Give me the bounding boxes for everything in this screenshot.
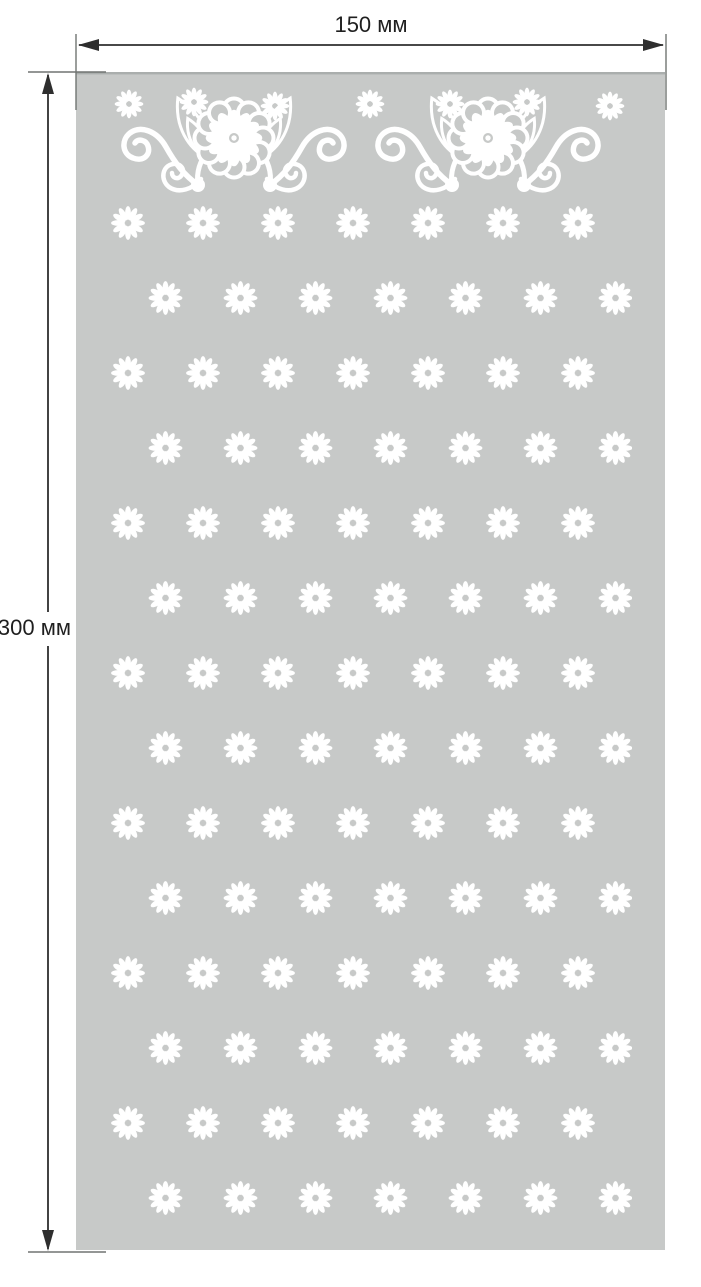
arrow-down-icon [42, 1230, 54, 1251]
technical-drawing-page: 150 мм 300 мм [0, 0, 701, 1287]
height-dimension-label: 300 мм [0, 616, 71, 640]
arrow-right-icon [643, 39, 664, 51]
film-panel-drawing [0, 0, 701, 1287]
panel-top-edge [76, 72, 665, 74]
daisy-pattern-area [108, 200, 632, 1250]
arrow-up-icon [42, 73, 54, 94]
arrow-left-icon [78, 39, 99, 51]
width-dimension-label: 150 мм [271, 13, 471, 37]
